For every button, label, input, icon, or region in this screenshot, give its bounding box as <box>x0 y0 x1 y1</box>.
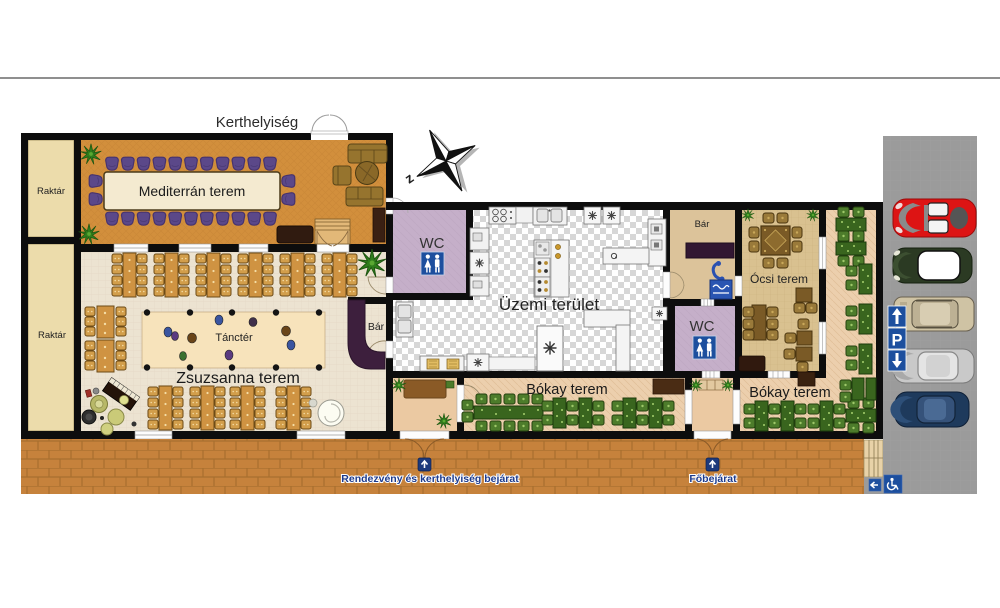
svg-text:Rendezvény és kerthelyiség bej: Rendezvény és kerthelyiség bejárat <box>341 473 519 485</box>
svg-text:Tánctér: Tánctér <box>215 332 253 344</box>
svg-text:WC: WC <box>690 318 715 335</box>
svg-text:P: P <box>891 332 902 350</box>
svg-text:Zsuzsanna terem: Zsuzsanna terem <box>176 370 300 387</box>
svg-text:Bókay terem: Bókay terem <box>526 382 607 398</box>
svg-text:Főbejárat: Főbejárat <box>689 473 737 485</box>
svg-text:Raktár: Raktár <box>37 186 65 197</box>
svg-text:Ócsi terem: Ócsi terem <box>750 271 808 286</box>
svg-text:Bár: Bár <box>695 219 710 230</box>
svg-text:Kerthelyiség: Kerthelyiség <box>216 114 299 131</box>
svg-text:Bókay terem: Bókay terem <box>749 385 830 401</box>
svg-text:WC: WC <box>420 235 445 252</box>
svg-text:Mediterrán terem: Mediterrán terem <box>139 183 246 199</box>
svg-text:Bár: Bár <box>368 321 385 333</box>
svg-text:Raktár: Raktár <box>38 330 66 341</box>
svg-text:Üzemi terület: Üzemi terület <box>499 295 599 314</box>
